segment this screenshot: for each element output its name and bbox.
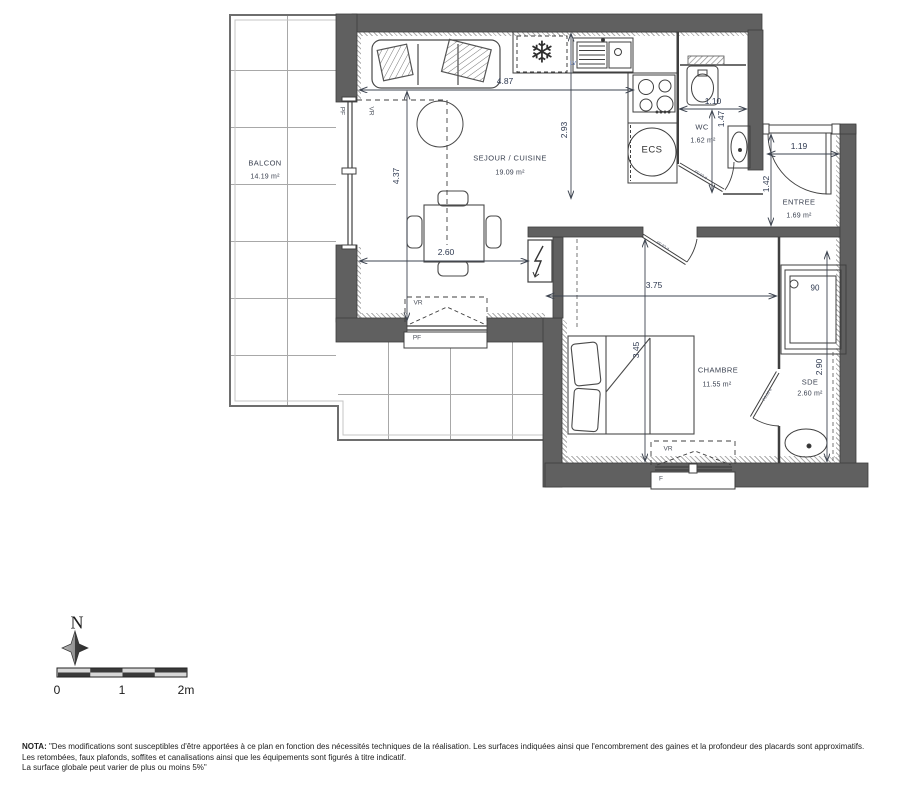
room-label-sejour: SEJOUR / CUISINE	[473, 154, 547, 163]
plan-drawing	[0, 0, 922, 800]
scale-one: 1	[119, 683, 126, 697]
room-label-entree: ENTREE	[783, 198, 816, 207]
dim-wc-width: 1.10	[705, 96, 722, 106]
round-table	[417, 101, 463, 147]
lv-label: LV	[570, 61, 576, 67]
dim-wc-height: 1.47	[716, 111, 726, 128]
walls	[336, 14, 868, 487]
dim-kitchen-height: 2.93	[559, 122, 569, 139]
scale-bar[interactable]	[57, 668, 187, 677]
dim-entree-width: 1.19	[791, 141, 808, 151]
north-label: N	[71, 613, 84, 634]
room-area-sde: 2.60 m²	[797, 391, 822, 398]
room-area-chambre: 11.55 m²	[703, 382, 732, 389]
compass-star	[62, 631, 88, 665]
ecs-label: ECS	[641, 145, 662, 156]
room-area-wc: 1.62 m²	[690, 138, 715, 145]
vr-label-bay: VR	[368, 106, 375, 115]
scale-two: 2m	[178, 683, 195, 697]
dim-chambre-height: 3.45	[631, 342, 641, 359]
dim-sde-height: 2.90	[814, 359, 824, 376]
vr-label-sejour: VR	[413, 300, 422, 307]
nota-label: NOTA:	[22, 742, 47, 751]
entrance-door	[763, 124, 840, 194]
dining-table	[407, 191, 501, 276]
dim-entree-height: 1.42	[761, 176, 771, 193]
room-area-balcon: 14.19 m²	[250, 174, 279, 181]
room-area-entree: 1.69 m²	[786, 213, 811, 220]
room-label-balcon: BALCON	[248, 159, 281, 168]
nota-disclaimer: NOTA: "Des modifications sont susceptibl…	[22, 742, 908, 774]
room-label-sde: SDE	[802, 378, 819, 387]
scale-zero: 0	[54, 683, 61, 697]
dim-shower: 90	[811, 284, 820, 293]
nota-line1: "Des modifications sont susceptibles d'ê…	[49, 742, 864, 751]
room-label-wc: WC	[695, 123, 708, 132]
room-label-chambre: CHAMBRE	[698, 366, 738, 375]
dim-kitchen-width: 4.87	[497, 76, 514, 86]
floor-plan-canvas: ❄ BALCON 14.19 m² SEJOUR / CUISINE 19.09…	[0, 0, 922, 800]
chambre-door	[642, 234, 698, 265]
nota-line3: La surface globale peut varier de plus o…	[22, 763, 207, 772]
pf-label-sejour: PF	[413, 335, 421, 342]
room-area-sejour: 19.09 m²	[495, 170, 524, 177]
dim-chambre-width: 3.75	[646, 280, 663, 290]
dim-sejour-height: 4.37	[391, 168, 401, 185]
dashed-guides	[577, 239, 833, 461]
f-label-chambre: F	[659, 476, 663, 483]
dim-dining-width: 2.60	[438, 247, 455, 257]
pf-label-bay: PF	[339, 107, 346, 115]
snowflake-icon: ❄	[529, 36, 554, 71]
electrical-panel	[528, 240, 552, 282]
vr-label-chambre: VR	[663, 446, 672, 453]
nota-line2: Les retombées, faux plafonds, soffites e…	[22, 753, 406, 762]
sofa	[372, 39, 500, 88]
